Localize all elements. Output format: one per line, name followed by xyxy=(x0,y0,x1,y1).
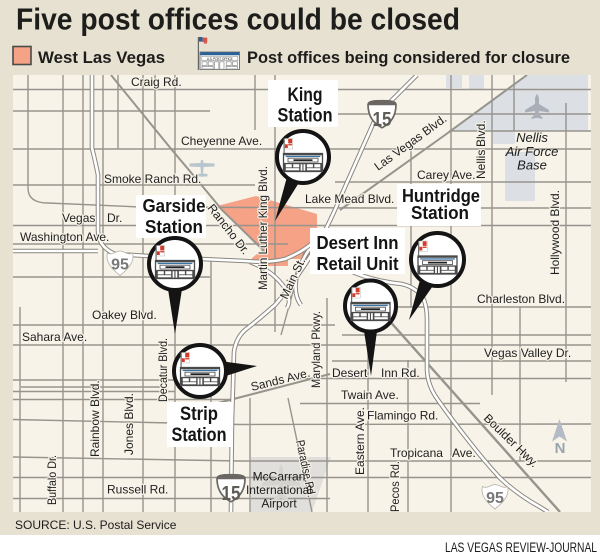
svg-text:Retail Unit: Retail Unit xyxy=(317,253,399,274)
svg-text:Station: Station xyxy=(411,203,469,223)
svg-text:Nellis: Nellis xyxy=(474,150,488,179)
svg-text:Station: Station xyxy=(278,106,333,127)
svg-text:Dr.: Dr. xyxy=(107,211,122,225)
svg-text:Sahara Ave.: Sahara Ave. xyxy=(22,330,87,344)
svg-text:Garside: Garside xyxy=(143,195,206,216)
svg-text:Five post offices could be clo: Five post offices could be closed xyxy=(16,3,460,37)
svg-text:Pecos Rd.: Pecos Rd. xyxy=(388,461,402,512)
svg-text:15: 15 xyxy=(222,483,241,505)
svg-text:Strip: Strip xyxy=(180,404,218,425)
svg-text:Washington Ave.: Washington Ave. xyxy=(20,230,109,244)
svg-text:Desert: Desert xyxy=(332,366,368,380)
svg-text:95: 95 xyxy=(111,257,129,274)
svg-text:International: International xyxy=(246,483,312,497)
svg-text:U.S. POST OFFICE: U.S. POST OFFICE xyxy=(207,57,233,61)
svg-text:Vegas: Vegas xyxy=(62,211,95,225)
svg-text:Eastern Ave.: Eastern Ave. xyxy=(353,407,367,475)
svg-text:LAS VEGAS REVIEW-JOURNAL: LAS VEGAS REVIEW-JOURNAL xyxy=(445,540,597,555)
svg-text:Russell Rd.: Russell Rd. xyxy=(107,483,168,497)
svg-text:Hollywood Blvd.: Hollywood Blvd. xyxy=(548,190,562,275)
svg-text:Twain Ave.: Twain Ave. xyxy=(341,388,399,402)
svg-text:Smoke Ranch Rd.: Smoke Ranch Rd. xyxy=(104,172,201,186)
svg-text:Inn Rd.: Inn Rd. xyxy=(381,366,420,380)
svg-text:King: King xyxy=(288,85,323,106)
svg-text:Ave.: Ave. xyxy=(452,446,476,460)
svg-text:Jones Blvd.: Jones Blvd. xyxy=(122,393,136,455)
svg-text:Carey Ave.: Carey Ave. xyxy=(417,168,475,182)
svg-text:Martin Luther King Blvd.: Martin Luther King Blvd. xyxy=(256,166,270,290)
svg-text:Tropicana: Tropicana xyxy=(390,446,443,460)
svg-text:Lake Mead Blvd.: Lake Mead Blvd. xyxy=(305,192,394,206)
svg-text:95: 95 xyxy=(486,490,504,507)
svg-text:Charleston Blvd.: Charleston Blvd. xyxy=(477,292,565,306)
svg-text:Nellis: Nellis xyxy=(516,130,548,145)
svg-text:Desert Inn: Desert Inn xyxy=(317,232,399,253)
svg-text:Oakey Blvd.: Oakey Blvd. xyxy=(92,308,157,322)
svg-text:Airport: Airport xyxy=(261,497,297,511)
svg-text:Flamingo Rd.: Flamingo Rd. xyxy=(367,409,438,423)
svg-text:McCarran: McCarran xyxy=(253,470,306,484)
svg-text:Blvd.: Blvd. xyxy=(474,120,488,147)
svg-text:Station: Station xyxy=(145,216,203,237)
svg-text:Buffalo Dr.: Buffalo Dr. xyxy=(45,455,59,505)
svg-text:Cheyenne Ave.: Cheyenne Ave. xyxy=(181,134,262,148)
svg-text:Station: Station xyxy=(172,425,227,446)
svg-text:Post offices being considered: Post offices being considered for closur… xyxy=(247,48,570,67)
svg-text:Vegas Valley Dr.: Vegas Valley Dr. xyxy=(484,346,571,360)
svg-text:Rainbow Blvd.: Rainbow Blvd. xyxy=(88,380,102,457)
svg-text:West Las Vegas: West Las Vegas xyxy=(38,48,165,67)
svg-text:Base: Base xyxy=(517,158,547,173)
svg-text:SOURCE: U.S. Postal Service: SOURCE: U.S. Postal Service xyxy=(15,518,177,532)
svg-text:15: 15 xyxy=(373,109,392,131)
svg-text:Craig Rd.: Craig Rd. xyxy=(131,75,182,89)
svg-text:N: N xyxy=(555,440,566,457)
svg-text:Decatur Blvd.: Decatur Blvd. xyxy=(156,338,170,402)
svg-text:Maryland Pkwy.: Maryland Pkwy. xyxy=(309,311,323,388)
